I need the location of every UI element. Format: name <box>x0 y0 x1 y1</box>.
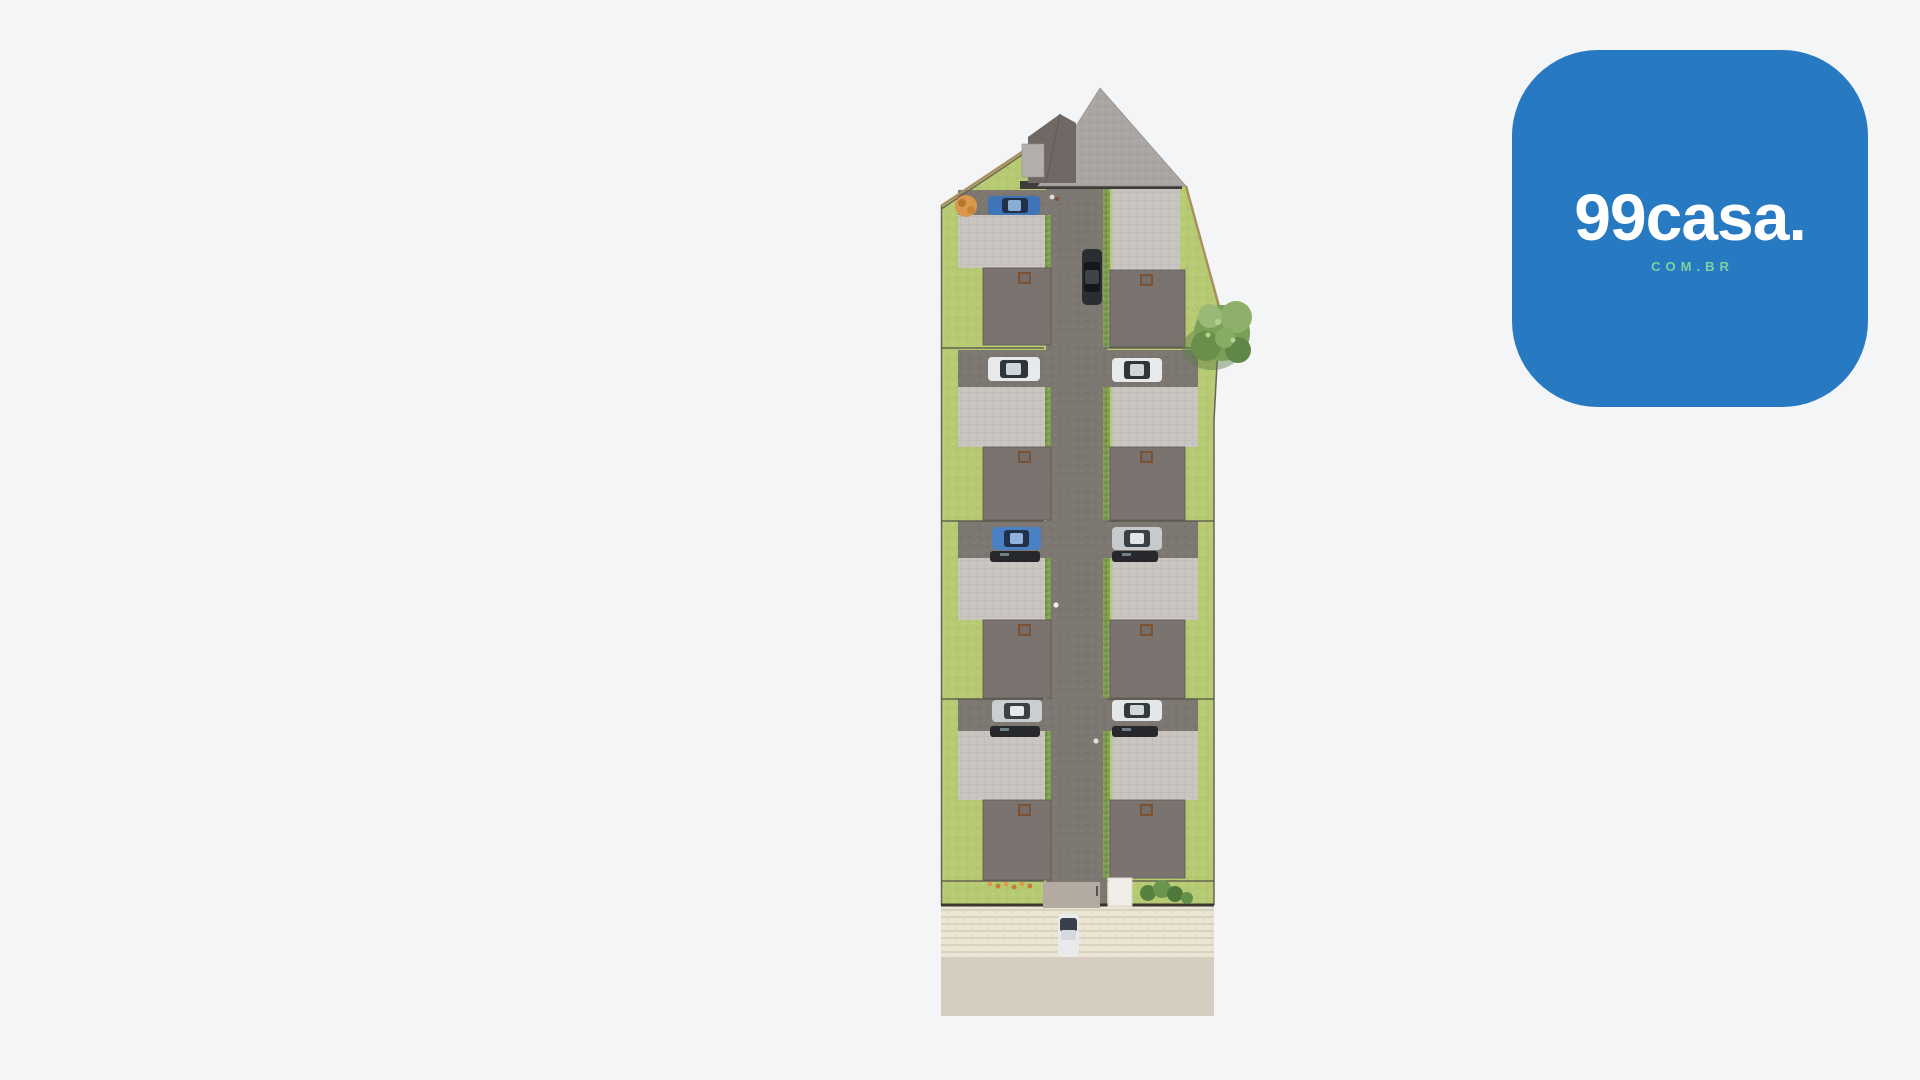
entrance-building <box>1020 88 1186 189</box>
house-unit-row1-right <box>1110 188 1185 347</box>
page-background: { "colors": { "page-bg": "#f4f5f7", "bra… <box>0 0 1920 1080</box>
logo-wordmark: 99casa. <box>1574 184 1806 250</box>
parked-car-white-row2-right <box>1112 358 1162 382</box>
parked-car-silver-row3-right <box>1112 527 1162 550</box>
parked-car-blue-row1 <box>988 196 1040 215</box>
rear-gate <box>1043 878 1132 908</box>
parked-car-white-row2-left <box>988 357 1040 381</box>
driving-car-dark <box>1082 249 1102 305</box>
street-car-white <box>1058 914 1079 957</box>
parked-car-silver-row4-left <box>992 700 1042 722</box>
site-plan-render <box>936 83 1270 1018</box>
parked-car-blue-row3-left <box>992 527 1041 550</box>
logo-badge: 99casa. COM.BR <box>1512 50 1868 407</box>
street <box>941 957 1214 1016</box>
house-unit-row2-right <box>1110 387 1198 520</box>
orange-bush <box>955 195 977 217</box>
parked-car-white-row4-right <box>1112 700 1162 721</box>
house-unit-row4-right <box>1110 731 1198 878</box>
logo-domain-label: COM.BR <box>1646 259 1734 274</box>
house-unit-row3-right <box>1110 558 1198 698</box>
